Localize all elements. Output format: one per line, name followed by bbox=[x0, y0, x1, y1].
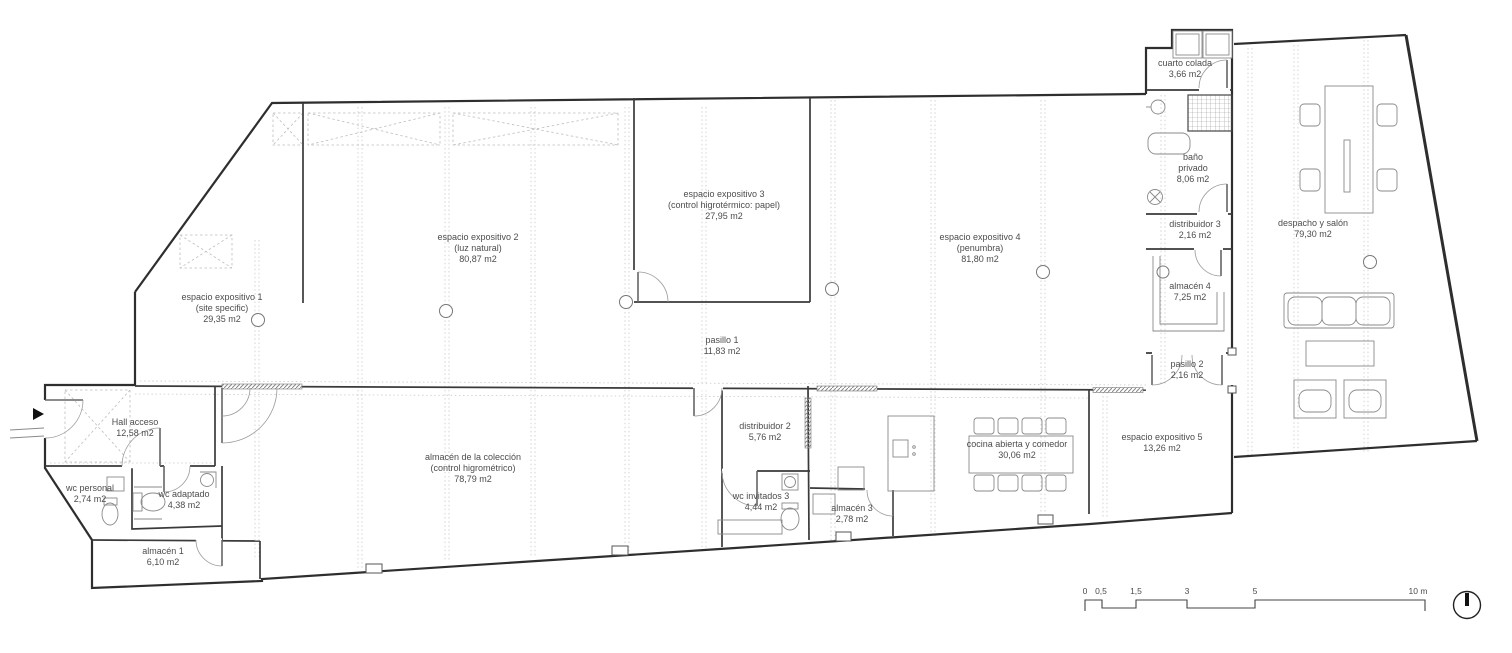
room-name: distribuidor 3 bbox=[1169, 219, 1221, 229]
room-area: 2,16 m2 bbox=[1179, 230, 1212, 240]
label-almacen-de-la-coleccion: almacén de la colección (control higromé… bbox=[425, 452, 521, 484]
room-name: espacio expositivo 3 bbox=[683, 189, 764, 199]
skylight-box-2 bbox=[453, 113, 618, 145]
almacen4-door bbox=[1195, 250, 1221, 276]
label-distribuidor-3: distribuidor 3 2,16 m2 bbox=[1169, 219, 1221, 240]
sliding-door-4 bbox=[805, 398, 811, 448]
almacen1-door bbox=[196, 540, 222, 566]
room-area: 6,10 m2 bbox=[147, 557, 180, 567]
room-area: 2,78 m2 bbox=[836, 514, 869, 524]
room-area: 27,95 m2 bbox=[705, 211, 743, 221]
room-area: 2,16 m2 bbox=[1171, 370, 1204, 380]
label-hall-acceso: Hall acceso 12,58 m2 bbox=[112, 417, 159, 438]
armchair-1 bbox=[1294, 380, 1336, 418]
washer-dryer bbox=[1173, 31, 1232, 58]
label-espacio-expositivo-4: espacio expositivo 4 (penumbra) 81,80 m2 bbox=[939, 232, 1020, 264]
room-sub: (luz natural) bbox=[454, 243, 502, 253]
room-sub: (control higrotérmico: papel) bbox=[668, 200, 780, 210]
room-name: wc invitados 3 bbox=[732, 491, 790, 501]
interior-walls bbox=[45, 90, 1232, 579]
shower bbox=[1188, 95, 1232, 131]
entry-door bbox=[45, 400, 83, 438]
entry-step bbox=[10, 428, 44, 438]
room-name: distribuidor 2 bbox=[739, 421, 791, 431]
label-bano-privado: baño privado 8,06 m2 bbox=[1177, 152, 1210, 184]
room-area: 30,06 m2 bbox=[998, 450, 1036, 460]
room-name: almacén 3 bbox=[831, 503, 873, 513]
room-name: baño bbox=[1183, 152, 1203, 162]
room-area: 4,44 m2 bbox=[745, 502, 778, 512]
label-pasillo-2: pasillo 2 2,16 m2 bbox=[1170, 359, 1203, 380]
sliding-door-3 bbox=[1093, 388, 1143, 393]
room-name: espacio expositivo 2 bbox=[437, 232, 518, 242]
room-area: 80,87 m2 bbox=[459, 254, 497, 264]
room-name: pasillo 1 bbox=[705, 335, 738, 345]
room-name: wc adaptado bbox=[157, 489, 209, 499]
room-area: 7,25 m2 bbox=[1174, 292, 1207, 302]
room-name: pasillo 2 bbox=[1170, 359, 1203, 369]
room-area: 4,38 m2 bbox=[168, 500, 201, 510]
label-almacen-3: almacén 3 2,78 m2 bbox=[831, 503, 873, 524]
label-wc-personal: wc personal 2,74 m2 bbox=[65, 483, 114, 504]
room-area: 29,35 m2 bbox=[203, 314, 241, 324]
room-name: cocina abierta y comedor bbox=[967, 439, 1068, 449]
room-area: 2,74 m2 bbox=[74, 494, 107, 504]
room-sub: (site specific) bbox=[196, 303, 249, 313]
room-name: espacio expositivo 1 bbox=[181, 292, 262, 302]
room-name: despacho y salón bbox=[1278, 218, 1348, 228]
room-area: 13,26 m2 bbox=[1143, 443, 1181, 453]
room-labels: espacio expositivo 1 (site specific) 29,… bbox=[65, 58, 1348, 567]
room-name: cuarto colada bbox=[1158, 58, 1212, 68]
entrance-arrow-icon bbox=[33, 408, 44, 420]
toilet-bano bbox=[1148, 190, 1163, 205]
room-area: 81,80 m2 bbox=[961, 254, 999, 264]
label-pasillo-1: pasillo 1 11,83 m2 bbox=[704, 335, 741, 356]
sliding-door-2 bbox=[817, 386, 877, 391]
scale-tick-10m: 10 m bbox=[1409, 586, 1428, 596]
room-area: 12,58 m2 bbox=[116, 428, 154, 438]
room-name: almacén de la colección bbox=[425, 452, 521, 462]
label-almacen-1: almacén 1 6,10 m2 bbox=[142, 546, 184, 567]
room-sub: privado bbox=[1178, 163, 1208, 173]
label-espacio-expositivo-2: espacio expositivo 2 (luz natural) 80,87… bbox=[437, 232, 518, 264]
room-area: 3,66 m2 bbox=[1169, 69, 1202, 79]
label-almacen-4: almacén 4 7,25 m2 bbox=[1169, 281, 1211, 302]
scale-tick-5: 5 bbox=[1253, 586, 1258, 596]
scale-bar: 0 0,5 1,5 3 5 10 m bbox=[1083, 586, 1428, 611]
floor-plan-drawing: espacio expositivo 1 (site specific) 29,… bbox=[0, 0, 1512, 653]
scale-tick-1-5: 1,5 bbox=[1130, 586, 1142, 596]
north-arrow-icon bbox=[1454, 592, 1481, 619]
room-name: espacio expositivo 5 bbox=[1121, 432, 1202, 442]
room-area: 8,06 m2 bbox=[1177, 174, 1210, 184]
scale-tick-0: 0 bbox=[1083, 586, 1088, 596]
label-espacio-expositivo-1: espacio expositivo 1 (site specific) 29,… bbox=[181, 292, 262, 324]
sliding-door-1 bbox=[222, 384, 302, 389]
scale-tick-3: 3 bbox=[1185, 586, 1190, 596]
floor-plan-canvas: espacio expositivo 1 (site specific) 29,… bbox=[0, 0, 1512, 653]
meeting-table bbox=[1300, 86, 1397, 213]
columns bbox=[252, 256, 1377, 327]
sofa bbox=[1284, 293, 1394, 328]
room-name: wc personal bbox=[65, 483, 114, 493]
label-espacio-expositivo-5: espacio expositivo 5 13,26 m2 bbox=[1121, 432, 1202, 453]
room-area: 78,79 m2 bbox=[454, 474, 492, 484]
exhibit-platform-x bbox=[180, 235, 232, 268]
room-name: espacio expositivo 4 bbox=[939, 232, 1020, 242]
label-cocina-abierta-y-comedor: cocina abierta y comedor 30,06 m2 bbox=[967, 439, 1068, 460]
bathroom-sink bbox=[1146, 100, 1165, 114]
room-name: almacén 1 bbox=[142, 546, 184, 556]
room-area: 5,76 m2 bbox=[749, 432, 782, 442]
room-name: Hall acceso bbox=[112, 417, 159, 427]
armchair-2 bbox=[1344, 380, 1386, 418]
label-cuarto-colada: cuarto colada 3,66 m2 bbox=[1158, 58, 1212, 79]
room-name: almacén 4 bbox=[1169, 281, 1211, 291]
room-area: 79,30 m2 bbox=[1294, 229, 1332, 239]
scale-tick-0-5: 0,5 bbox=[1095, 586, 1107, 596]
expo3-door bbox=[638, 272, 668, 302]
wc-invitados-fixtures bbox=[781, 474, 799, 530]
kitchen-island bbox=[838, 416, 934, 491]
label-wc-adaptado: wc adaptado 4,38 m2 bbox=[157, 489, 209, 510]
room-sub: (control higrométrico) bbox=[430, 463, 515, 473]
room-area: 11,83 m2 bbox=[704, 346, 741, 356]
label-despacho-y-salon: despacho y salón 79,30 m2 bbox=[1278, 218, 1348, 239]
skylight-box-small bbox=[273, 113, 303, 145]
distribuidor2-door bbox=[694, 388, 722, 416]
skylight-box-1 bbox=[308, 113, 440, 145]
label-espacio-expositivo-3: espacio expositivo 3 (control higrotérmi… bbox=[668, 189, 780, 221]
label-distribuidor-2: distribuidor 2 5,76 m2 bbox=[739, 421, 791, 442]
room-sub: (penumbra) bbox=[957, 243, 1004, 253]
bathtub bbox=[1148, 133, 1190, 154]
collection-double-door bbox=[222, 388, 277, 443]
bano-door bbox=[1199, 184, 1227, 212]
